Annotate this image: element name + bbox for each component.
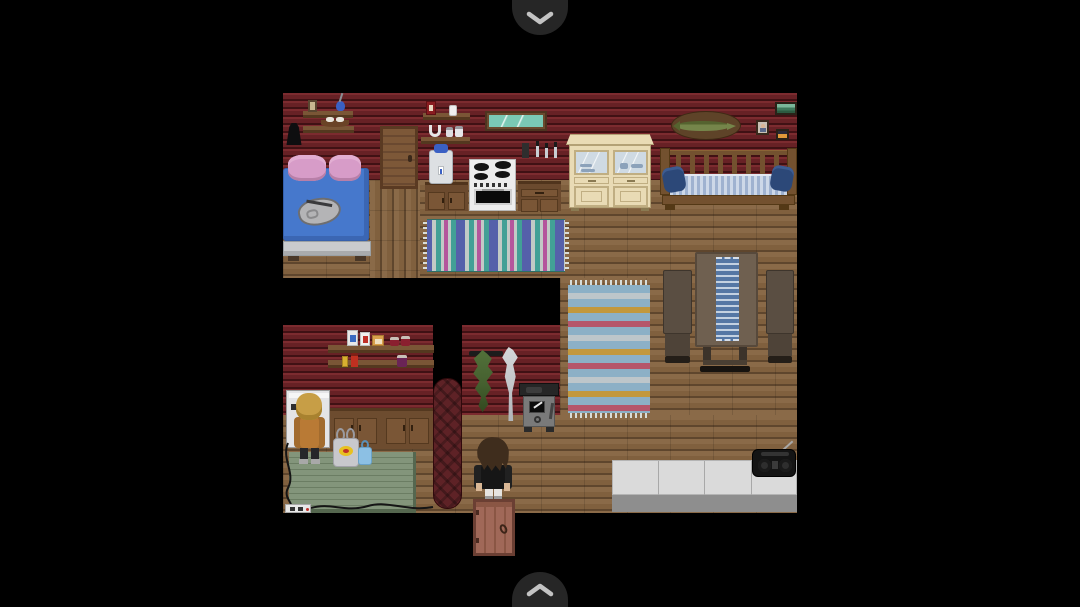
hutch-glass-door (574, 150, 609, 175)
landscape-painting (775, 102, 797, 115)
flour-sack (347, 330, 358, 346)
hutch-drawer (613, 177, 648, 184)
burner (495, 171, 510, 178)
cooler-tap (440, 169, 442, 174)
dining-chair (663, 270, 692, 370)
dishes (631, 164, 643, 168)
player-character[interactable] (474, 437, 512, 499)
cabinet-handle (359, 425, 361, 431)
counter-seam (658, 461, 659, 496)
fish-trophy-plaque (671, 111, 741, 140)
dishes (580, 164, 592, 167)
counter-base (612, 495, 797, 512)
bed-leg (288, 256, 299, 261)
food-shelf-board (328, 345, 434, 353)
kitchen-cabinet-right (518, 181, 561, 211)
supply-shelf-board (421, 137, 470, 144)
fire-poker (549, 403, 554, 419)
chair-legs (665, 334, 690, 356)
chair-legs (768, 334, 792, 356)
hutch-foot (641, 208, 649, 211)
preserve-jar (397, 355, 407, 367)
navy-pillow (661, 165, 687, 193)
stove-foot (524, 427, 532, 432)
cabinet-door (386, 418, 406, 444)
dining-table (695, 252, 758, 347)
power-light (306, 508, 309, 511)
portrait-body (760, 128, 766, 132)
hot-sauce-bottle (351, 353, 358, 367)
npc-shoe (311, 459, 320, 464)
chair-foot-bar (768, 356, 792, 363)
npc-leg (300, 448, 308, 459)
red-tin (426, 101, 436, 115)
door-top-rail (476, 502, 512, 507)
wooden-bowl (321, 120, 349, 127)
hutch-lower-door (613, 186, 648, 207)
boombox-handle (761, 452, 789, 456)
bag-label (339, 446, 353, 456)
satchel-pocket (306, 208, 320, 219)
chevron-down-icon (525, 11, 555, 25)
exit-door[interactable] (473, 499, 515, 556)
burner (495, 161, 511, 169)
pike-fish-body (678, 121, 730, 131)
power-strip (285, 504, 311, 513)
cabinet-door (521, 199, 538, 212)
wall-mirror (485, 111, 547, 131)
fire-window (529, 401, 545, 413)
lantern-picture (776, 129, 789, 140)
chair-back (766, 270, 794, 334)
knife-blade (545, 148, 548, 158)
npc-hair (296, 393, 322, 420)
kitchen-cabinet-left (425, 182, 468, 211)
window-glint (533, 401, 542, 408)
table-runner (716, 257, 739, 341)
outlet (290, 507, 295, 511)
player-hand (476, 483, 482, 491)
cooler-bottle (434, 144, 448, 153)
npc-blonde[interactable] (294, 393, 325, 464)
oven-handle (482, 189, 504, 191)
interior-door[interactable] (380, 126, 418, 189)
cabinet-handle (442, 198, 444, 203)
pike-tail (673, 121, 680, 131)
blue-vase (336, 101, 345, 111)
boombox-body (752, 449, 796, 477)
milk-bottle (449, 105, 457, 116)
scroll-down-button[interactable] (512, 572, 568, 607)
hutch-foot (571, 208, 579, 211)
boombox-deck (772, 461, 778, 469)
cleaver (522, 143, 529, 158)
bag-label-dot (343, 449, 349, 453)
player-hand (504, 483, 510, 491)
daybed-leg (665, 205, 675, 210)
teal-rug (427, 219, 565, 272)
china-hutch (566, 134, 654, 211)
small-jar (455, 126, 463, 137)
chair-foot-bar (665, 356, 690, 363)
bed-leg (355, 256, 366, 261)
game-viewport[interactable] (283, 93, 797, 513)
tin-label (429, 105, 433, 111)
daybed (660, 148, 797, 210)
sugar-label (363, 336, 368, 343)
dining-chair (766, 270, 794, 370)
daybed-leg (779, 205, 789, 210)
stove-body (523, 396, 555, 427)
gray-shopping-bag (333, 428, 359, 467)
bed (283, 155, 371, 261)
water-cooler (429, 144, 453, 184)
oven-window (474, 189, 512, 205)
drawer-handle (588, 180, 596, 182)
door-hinge (476, 510, 479, 515)
box-label (375, 339, 382, 344)
boombox-speaker (779, 459, 792, 472)
pink-pillow (329, 155, 361, 181)
table-crossbar (703, 360, 747, 365)
hanging-sausages (433, 378, 462, 509)
stove-vent (526, 387, 542, 393)
knife-rack (520, 141, 564, 159)
striped-rug (568, 285, 650, 413)
bed-footboard (283, 241, 371, 256)
hutch-drawer (574, 177, 609, 184)
pink-pillow (288, 155, 326, 181)
cabinet-handle (403, 425, 405, 431)
blue-shopping-bag (358, 440, 372, 465)
door-panel (581, 191, 602, 202)
drawer (521, 189, 558, 197)
dishes (581, 169, 595, 172)
stove-foot (546, 427, 554, 432)
trinket-shelf-board (303, 126, 354, 133)
scroll-up-button[interactable] (512, 0, 568, 35)
door-hinge (476, 538, 479, 543)
pike-snout (727, 123, 736, 130)
cabinet-handle (411, 425, 413, 431)
cracker-box (372, 335, 384, 346)
hutch-cornice (566, 134, 654, 145)
table-base (700, 347, 750, 372)
knob-row (474, 183, 512, 187)
stove-door-handle (534, 416, 541, 423)
chevron-up-icon (525, 583, 555, 597)
hallway-floor-strip (370, 180, 420, 278)
jam-jar (390, 337, 399, 346)
wood-stove[interactable] (519, 383, 559, 433)
outlet (298, 507, 303, 511)
jam-jar (401, 336, 410, 346)
player-leg (485, 489, 493, 496)
bag-body (358, 447, 372, 465)
shelf-photo-frame (308, 100, 317, 112)
chair-back (663, 270, 692, 334)
drawer-handle (627, 180, 635, 182)
bag-body (333, 438, 359, 467)
npc-shoe (299, 459, 308, 464)
table-foot-bar (700, 366, 750, 372)
door-handle (498, 523, 509, 535)
cabinet-door (540, 199, 558, 212)
sugar-bag (360, 332, 370, 346)
app-background: { "app": {"background_color": "#000000",… (0, 0, 1080, 607)
flour-label (350, 335, 356, 342)
cabinet-handle (450, 198, 452, 203)
shoes-pair (326, 117, 334, 122)
door-panel (620, 191, 641, 202)
dark-void (283, 278, 560, 325)
shoes-pair (336, 117, 344, 122)
boombox-speaker (758, 459, 771, 472)
door-handle (408, 155, 412, 162)
hutch-body (569, 145, 651, 208)
portrait-picture (756, 120, 769, 135)
cabinet-door (409, 418, 429, 444)
npc-leg (311, 448, 319, 459)
knife-blade (554, 147, 557, 158)
hutch-lower-door (574, 186, 609, 207)
player-leg (494, 489, 502, 496)
mirror-glass (489, 115, 543, 127)
counter-seam (704, 461, 705, 496)
burner (474, 163, 489, 171)
dishes (620, 163, 628, 169)
small-jar (446, 127, 453, 137)
boombox[interactable] (752, 449, 796, 477)
burner (474, 173, 488, 180)
stove-top (519, 383, 559, 396)
oil-bottle (342, 356, 348, 367)
daybed-front-rail (662, 195, 795, 205)
horseshoe (429, 125, 441, 137)
drawer-handle (535, 192, 544, 194)
cooking-stove[interactable] (469, 159, 516, 211)
satchel-strap (306, 200, 332, 207)
npc-jacket (294, 417, 325, 448)
knife-blade (536, 146, 539, 157)
hutch-glass-door (613, 150, 648, 175)
